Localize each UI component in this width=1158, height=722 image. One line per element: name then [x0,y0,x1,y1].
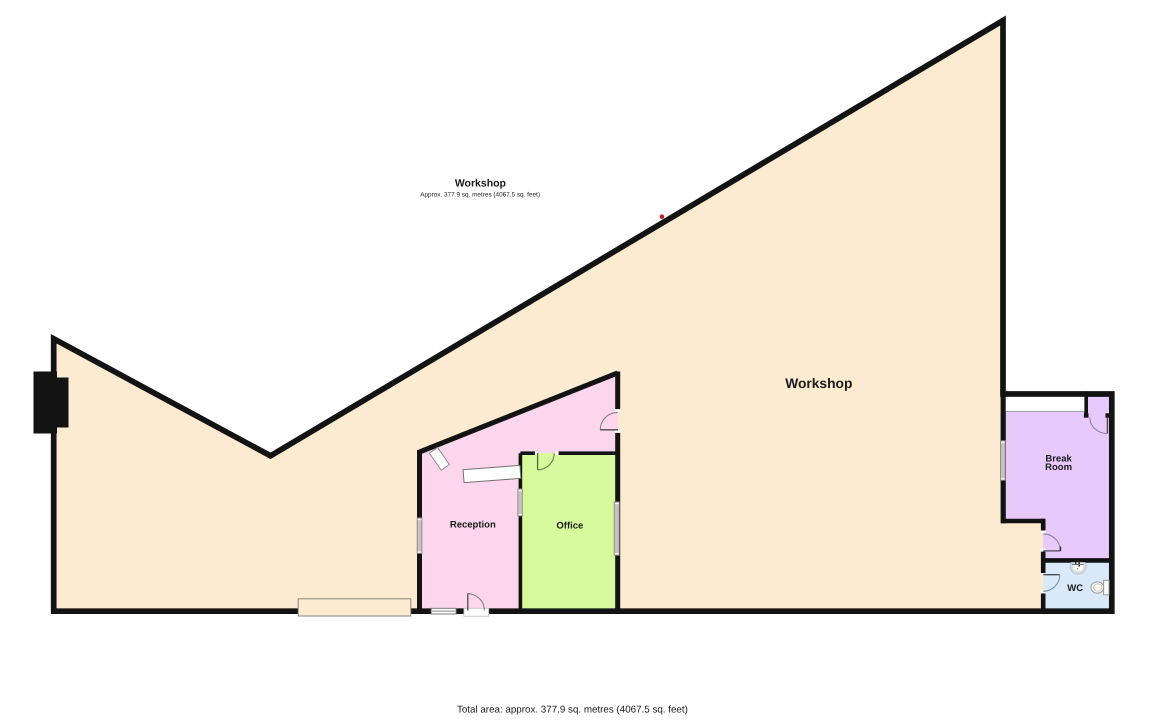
svg-text:Workshop: Workshop [785,376,852,391]
svg-text:Approx. 377.9 sq. metres (4067: Approx. 377.9 sq. metres (4067.5 sq. fee… [420,191,540,198]
svg-text:Workshop: Workshop [455,177,506,189]
svg-text:Reception: Reception [450,519,496,530]
svg-text:Room: Room [1045,462,1072,473]
svg-text:Total area: approx. 377.9 sq.: Total area: approx. 377.9 sq. metres (40… [457,704,688,715]
svg-text:Office: Office [556,521,583,532]
svg-text:WC: WC [1067,583,1083,594]
